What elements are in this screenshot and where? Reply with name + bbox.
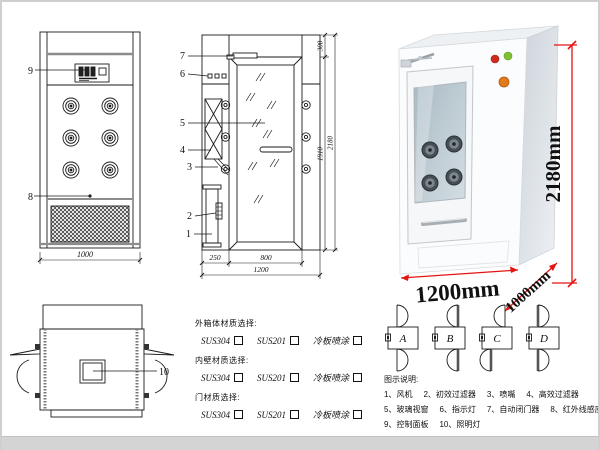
material-option-label: SUS201 [257, 410, 286, 420]
door-swing-option-a: A [385, 301, 423, 373]
checkbox[interactable] [234, 373, 243, 382]
catalog-sheet: 9 8 1000 [0, 0, 600, 450]
fan-filter-unit [205, 99, 230, 175]
checkbox[interactable] [290, 373, 299, 382]
glass-marks [246, 73, 279, 203]
material-option-label: 冷板喷涂 [313, 334, 349, 347]
door-swing-option-d: D [526, 301, 564, 373]
door-option-label: D [539, 333, 548, 345]
air-return-grille [51, 206, 129, 242]
side-view-drawing: 7 6 5 4 3 2 1 300 1910 2180 250 800 1200 [170, 7, 348, 292]
callout-2: 2 [187, 211, 192, 222]
callout-6: 6 [180, 69, 185, 80]
callout-5: 5 [180, 118, 185, 129]
legend-row: 9、控制面板 10、照明灯 [384, 419, 592, 430]
material-option-label: SUS201 [257, 336, 286, 346]
legend-item: 10、照明灯 [439, 419, 480, 430]
legend-title: 图示说明: [384, 374, 592, 385]
callout-8: 8 [28, 192, 33, 203]
glass-door [237, 65, 294, 242]
door-handle [260, 147, 292, 152]
dim-1910: 1910 [317, 147, 325, 162]
nozzles [63, 98, 118, 178]
callout-10: 10 [159, 367, 169, 378]
checkbox[interactable] [234, 410, 243, 419]
top-plenum [43, 305, 142, 329]
checkbox[interactable] [353, 373, 362, 382]
material-group-title: 外箱体材质选择: [195, 318, 387, 329]
left-door-flap [10, 344, 40, 398]
side-nozzles [221, 101, 310, 173]
material-option-label: SUS304 [201, 373, 230, 383]
legend-item: 7、自动闭门器 [487, 404, 539, 415]
legend-item: 1、风机 [384, 389, 412, 400]
material-option-label: 冷板喷涂 [313, 371, 349, 384]
legend-item: 3、喷嘴 [487, 389, 515, 400]
checkbox[interactable] [234, 336, 243, 345]
dim-1200: 1200 [254, 265, 269, 274]
material-group-title: 门材质选择: [195, 392, 387, 403]
dim-2180: 2180 [327, 136, 335, 151]
dim-300: 300 [317, 40, 325, 52]
door-option-label: B [447, 333, 454, 345]
ceiling-light [80, 360, 105, 383]
front-view-drawing: 9 8 1000 [27, 24, 177, 269]
material-option-label: SUS201 [257, 373, 286, 383]
red-indicator-light [491, 55, 499, 63]
dim-width-1000: 1000 [77, 250, 93, 259]
door-closer [233, 53, 257, 58]
material-group-title: 内壁材质选择: [195, 355, 387, 366]
bottom-bar [2, 436, 598, 450]
photo-dim-height: 2180mm [541, 125, 565, 202]
door-swing-option-c: C [479, 301, 517, 373]
material-group-outer: 外箱体材质选择: SUS304 SUS201 冷板喷涂 [195, 318, 387, 347]
callout-1: 1 [186, 229, 191, 240]
material-option-label: SUS304 [201, 410, 230, 420]
callout-3: 3 [187, 162, 192, 173]
door-swing-options: A B C [385, 301, 564, 373]
top-body [40, 329, 144, 410]
legend-row: 5、玻璃视窗 6、指示灯 7、自动闭门器 8、红外线感应器 [384, 404, 592, 415]
orange-button [499, 77, 509, 87]
checkbox[interactable] [290, 336, 299, 345]
legend-row: 1、风机 2、初效过滤器 3、喷嘴 4、高效过滤器 [384, 389, 592, 400]
green-indicator-light [504, 52, 512, 60]
legend-item: 9、控制面板 [384, 419, 428, 430]
callout-7: 7 [180, 51, 185, 62]
dim-250: 250 [209, 253, 221, 262]
material-group-door: 门材质选择: SUS304 SUS201 冷板喷涂 [195, 392, 387, 421]
legend-item: 6、指示灯 [439, 404, 475, 415]
door-option-label: A [399, 333, 407, 345]
product-photo: 2180mm 1200mm 1000mm [368, 2, 600, 320]
callout-4: 4 [180, 145, 185, 156]
legend-item: 2、初效过滤器 [423, 389, 475, 400]
door-option-label: C [493, 333, 501, 345]
legend: 图示说明: 1、风机 2、初效过滤器 3、喷嘴 4、高效过滤器 5、玻璃视窗 6… [384, 374, 592, 434]
dim-800: 800 [260, 253, 272, 262]
legend-item: 4、高效过滤器 [526, 389, 578, 400]
checkbox[interactable] [353, 336, 362, 345]
checkbox[interactable] [290, 410, 299, 419]
duct-cylinder [203, 185, 222, 247]
legend-item: 5、玻璃视窗 [384, 404, 428, 415]
checkbox[interactable] [353, 410, 362, 419]
door-swing-option-b: B [432, 301, 470, 373]
material-option-label: SUS304 [201, 336, 230, 346]
top-view-drawing: 10 [7, 297, 197, 437]
callout-9: 9 [28, 66, 33, 77]
material-option-label: 冷板喷涂 [313, 408, 349, 421]
material-group-inner: 内壁材质选择: SUS304 SUS201 冷板喷涂 [195, 355, 387, 384]
material-options: 外箱体材质选择: SUS304 SUS201 冷板喷涂 内壁材质选择: SUS3… [195, 318, 387, 429]
legend-item: 8、红外线感应器 [550, 404, 600, 415]
